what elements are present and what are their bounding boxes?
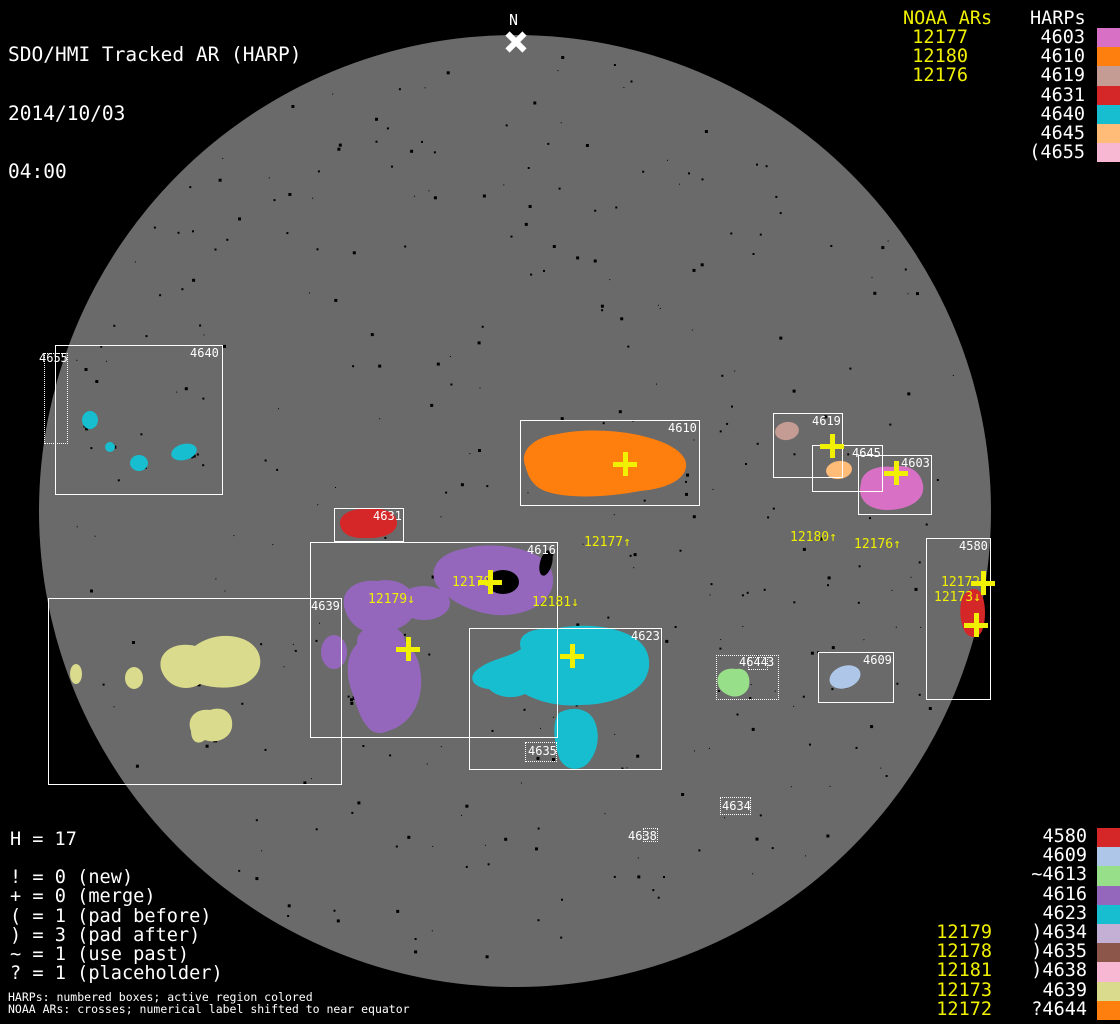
- harp-item: 4580: [987, 827, 1087, 846]
- harp-color-swatch: [1097, 124, 1120, 143]
- harp-item: 4639: [987, 981, 1087, 1000]
- harp-box-label-4631: 4631: [373, 510, 402, 522]
- noaa-ar-item: 12180: [868, 47, 968, 66]
- harp-box-label-4639: 4639: [311, 600, 340, 612]
- noaa-cross-12176: [884, 461, 908, 485]
- harp-item: (4655: [985, 143, 1085, 162]
- h-count-label: H = 17: [10, 830, 77, 849]
- harp-box-4639: [48, 598, 342, 785]
- harp-box-label-4644: 4644: [739, 656, 768, 668]
- noaa-cross-12179: [396, 637, 420, 661]
- legend-row: ! = 0 (new): [10, 868, 223, 887]
- harp-box-4655: [44, 353, 68, 444]
- noaa-bottom-list: 12179 12178 12181 12173 12172: [892, 923, 992, 1019]
- harp-color-swatch: [1097, 924, 1120, 943]
- harp-box-label-4638: 4638: [628, 830, 657, 842]
- harp-item: 4619: [985, 66, 1085, 85]
- symbol-legend: ! = 0 (new) + = 0 (merge) ( = 1 (pad bef…: [10, 868, 223, 984]
- harp-item: 4616: [987, 885, 1087, 904]
- harp-swatch-column-bottom: [1097, 828, 1120, 1020]
- harp-color-swatch: [1097, 886, 1120, 905]
- harp-box-label-4635: 4635: [528, 745, 557, 757]
- page-title: SDO/HMI Tracked AR (HARP): [8, 45, 302, 65]
- noaa-label-12179: 12179↓: [368, 593, 415, 606]
- harps-bottom-list: 4580 4609 ~4613 4616 4623 )4634 )4635 )4…: [987, 827, 1087, 1019]
- harps-top-list: 4603 4610 4619 4631 4640 4645 (4655: [985, 28, 1085, 162]
- noaa-cross-12177: [613, 452, 637, 476]
- harp-color-swatch: [1097, 847, 1120, 866]
- harp-item: 4640: [985, 105, 1085, 124]
- legend-row: + = 0 (merge): [10, 887, 223, 906]
- date-label: 2014/10/03: [8, 104, 302, 124]
- harp-color-swatch: [1097, 943, 1120, 962]
- harp-color-swatch: [1097, 47, 1120, 66]
- noaa-ars-header: NOAA ARs: [903, 9, 992, 28]
- harp-item: 4609: [987, 846, 1087, 865]
- plot-title-block: SDO/HMI Tracked AR (HARP) 2014/10/03 04:…: [8, 6, 302, 221]
- harp-color-swatch: [1097, 105, 1120, 124]
- harp-box-label-4634: 4634: [722, 800, 751, 812]
- harp-box-label-4623: 4623: [631, 630, 660, 642]
- harp-box-label-4640: 4640: [190, 347, 219, 359]
- harp-color-swatch: [1097, 1001, 1120, 1020]
- harp-tracking-screen: 4640465546104619464546034631461646394623…: [0, 0, 1120, 1024]
- north-pole-cross-icon: [504, 30, 528, 54]
- harp-item: 4631: [985, 86, 1085, 105]
- harp-box-label-4580: 4580: [959, 540, 988, 552]
- harp-color-swatch: [1097, 982, 1120, 1001]
- noaa-cross-12173: [964, 613, 988, 637]
- harp-swatch-column-top: [1097, 28, 1120, 162]
- harp-color-swatch: [1097, 143, 1120, 162]
- noaa-ar-item: 12181: [892, 961, 992, 980]
- noaa-top-list: 12177 12180 12176: [868, 28, 968, 86]
- noaa-cross-12178: [478, 570, 502, 594]
- harp-box-label-4610: 4610: [668, 422, 697, 434]
- noaa-label-12181: 12181↓: [532, 596, 579, 609]
- noaa-cross-12181: [560, 644, 584, 668]
- disk-text-0: 3: [767, 656, 774, 668]
- harp-box-label-4655: 4655: [39, 352, 68, 364]
- noaa-label-12180: 12180↑: [790, 531, 837, 544]
- harp-color-swatch: [1097, 905, 1120, 924]
- noaa-cross-12180: [820, 434, 844, 458]
- harp-item: ~4613: [987, 865, 1087, 884]
- harp-item: 4623: [987, 904, 1087, 923]
- harp-color-swatch: [1097, 28, 1120, 47]
- harp-box-label-4609: 4609: [863, 654, 892, 666]
- harp-color-swatch: [1097, 866, 1120, 885]
- legend-row: ( = 1 (pad before): [10, 907, 223, 926]
- legend-row: ) = 3 (pad after): [10, 926, 223, 945]
- time-label: 04:00: [8, 162, 302, 182]
- harp-item: )4634: [987, 923, 1087, 942]
- noaa-label-12176: 12176↑: [854, 538, 901, 551]
- noaa-ar-item: 12177: [868, 28, 968, 47]
- harp-item: 4603: [985, 28, 1085, 47]
- footnote-noaa: NOAA ARs: crosses; numerical label shift…: [8, 1003, 410, 1015]
- noaa-ar-item: 12172: [892, 1000, 992, 1019]
- harp-item: )4635: [987, 942, 1087, 961]
- noaa-label-12177: 12177↑: [584, 536, 631, 549]
- harp-color-swatch: [1097, 962, 1120, 981]
- north-pole-label: N: [509, 11, 518, 29]
- harp-color-swatch: [1097, 86, 1120, 105]
- noaa-ar-item: 12179: [892, 923, 992, 942]
- harp-box-label-4619: 4619: [812, 415, 841, 427]
- harps-header: HARPs: [1030, 9, 1086, 28]
- legend-row: ? = 1 (placeholder): [10, 964, 223, 983]
- harp-color-swatch: [1097, 828, 1120, 847]
- noaa-ar-item: 12178: [892, 942, 992, 961]
- harp-box-4640: [55, 345, 223, 495]
- noaa-ar-item: 12173: [892, 981, 992, 1000]
- harp-box-label-4616: 4616: [527, 544, 556, 556]
- harp-item: ?4644: [987, 1000, 1087, 1019]
- harp-item: )4638: [987, 961, 1087, 980]
- harp-item: 4610: [985, 47, 1085, 66]
- noaa-ar-item: 12176: [868, 66, 968, 85]
- harp-color-swatch: [1097, 66, 1120, 85]
- noaa-cross-12172: [971, 571, 995, 595]
- legend-row: ~ = 1 (use past): [10, 945, 223, 964]
- harp-item: 4645: [985, 124, 1085, 143]
